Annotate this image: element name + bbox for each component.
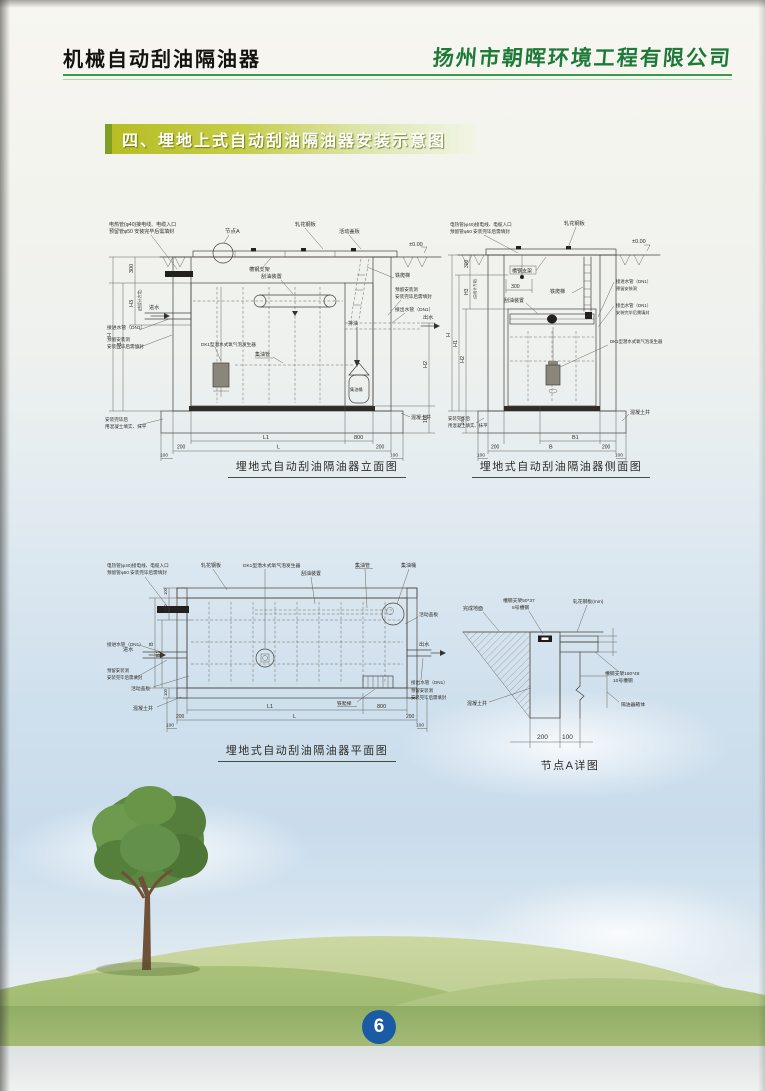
outlet-pipe-label: 接出水管（DN1） bbox=[411, 679, 448, 686]
outlet-pipe-label: 接出水管（DN1） bbox=[395, 306, 433, 313]
channel-support-label: 槽钢支架 bbox=[512, 268, 532, 275]
dim-100: 100 bbox=[166, 723, 174, 729]
section-banner-accent bbox=[105, 124, 112, 154]
dim-100: 100 bbox=[163, 587, 168, 595]
plan-view-caption: 埋地式自动刮油隔油器平面图 bbox=[218, 742, 396, 762]
reserved-hole-label1: 预留安装洞 bbox=[411, 687, 434, 694]
checkered-plate-label: 轧花钢板 bbox=[201, 562, 221, 569]
support-big-label1: 槽钢支架160*48 bbox=[605, 670, 640, 677]
section-banner: 四、埋地上式自动刮油隔油器安装示意图 bbox=[112, 124, 476, 154]
section-title: 四、埋地上式自动刮油隔油器安装示意图 bbox=[112, 127, 446, 151]
dim-b: B bbox=[549, 445, 553, 451]
dim-b1: B1 bbox=[156, 651, 162, 657]
node-dim-lines bbox=[510, 718, 593, 748]
backfill-note1: 安装完毕后 bbox=[105, 416, 128, 423]
dim-h3-note: (由设计方定) bbox=[137, 289, 142, 311]
node-a-detail-drawing: 完成地面 槽钢支架50*37 5号槽钢 轧花钢板(mm) 槽钢支架160*48 … bbox=[455, 590, 675, 765]
outlet-label: 出水 bbox=[423, 313, 434, 321]
backfill-note2: 用混凝土填实、抹平 bbox=[448, 422, 488, 429]
company-name: 扬州市朝晖环境工程有限公司 bbox=[432, 42, 734, 72]
page-number-badge: 6 bbox=[362, 1010, 396, 1044]
dim-l1: L1 bbox=[267, 704, 273, 710]
dim-800: 800 bbox=[354, 435, 363, 441]
dim-200: 200 bbox=[537, 734, 548, 741]
cable-note-line1: 电热管(φ40)接电线、电缆入口 bbox=[450, 221, 512, 228]
plan-equipment bbox=[143, 602, 446, 688]
reserved-hole-label2: 安装完毕后需填封 bbox=[616, 309, 650, 316]
oil-barrel-label: 集油桶 bbox=[401, 562, 416, 569]
dim-300: 300 bbox=[129, 264, 135, 273]
checkered-plate-label: 轧花钢板 bbox=[564, 219, 586, 227]
concrete-well-label: 混凝土井 bbox=[630, 409, 650, 416]
side-view-caption: 埋地式自动刮油隔油器侧面图 bbox=[472, 458, 650, 478]
cable-note-line2: 预留管φ50 安装完毕后需填封 bbox=[450, 228, 510, 235]
cable-note-line2: 预留管φ50 安装完毕后需填封 bbox=[109, 228, 174, 235]
cable-note-line1: 电热管(φ40)接电线、电缆入口 bbox=[107, 562, 169, 569]
dim-200: 200 bbox=[602, 445, 611, 451]
dim-300: 300 bbox=[163, 604, 168, 612]
elevation-caption: 埋地式自动刮油隔油器立面图 bbox=[228, 458, 406, 478]
channel-support-label: 槽钢支架 bbox=[249, 265, 270, 273]
oil-drain-label: 排油 bbox=[348, 320, 358, 327]
iron-ladder-label: 铁爬梯 bbox=[337, 700, 352, 707]
reserved-hole-label1: 预留安装洞 bbox=[395, 286, 418, 293]
scan-edge-left bbox=[0, 0, 10, 1091]
inlet-pipe-label: 接进水管（DN1） bbox=[107, 324, 145, 331]
backfill-note1: 安装完毕后 bbox=[448, 415, 471, 422]
level-label: ±0.00 bbox=[409, 242, 423, 248]
cable-note-line1: 电热管(φ40)接电线、电缆入口 bbox=[109, 221, 176, 228]
iron-ladder-label: 铁爬梯 bbox=[395, 272, 410, 279]
tree-art bbox=[80, 778, 220, 973]
elevation-equipment bbox=[145, 259, 440, 403]
support-small-label2: 5号槽钢 bbox=[512, 604, 529, 611]
tree-canopy bbox=[92, 786, 208, 888]
scan-footer-strip bbox=[0, 1046, 765, 1091]
plan-view-drawing: 电热管(φ40)接电线、电缆入口 预留管φ50 安装完毕后需填封 轧花钢板 DK… bbox=[105, 558, 460, 758]
backfill-note2: 用混凝土填实、抹平 bbox=[105, 423, 147, 430]
reserved-hole-label2: 安装完毕后需填封 bbox=[107, 674, 143, 681]
elevation-texts: 电热管(φ40)接电线、电缆入口 预留管φ50 安装完毕后需填封 节点A 轧花钢… bbox=[105, 220, 434, 459]
dim-b1: B1 bbox=[572, 435, 579, 441]
reserved-hole-label1: 预留安装洞 bbox=[616, 285, 637, 292]
page-number: 6 bbox=[374, 1016, 385, 1038]
cable-note-line2: 预留管φ50 安装完毕后需填封 bbox=[107, 569, 167, 576]
dim-200: 200 bbox=[376, 445, 385, 451]
side-leaders bbox=[476, 227, 629, 423]
level-label: ±0.00 bbox=[632, 239, 646, 245]
dim-h2: H2 bbox=[423, 361, 429, 368]
dim-l: L bbox=[277, 445, 280, 451]
movable-cover-label: 活动盖板 bbox=[131, 685, 150, 692]
scanned-catalog-page: 机械自动刮油隔油器 扬州市朝晖环境工程有限公司 四、埋地上式自动刮油隔油器安装示… bbox=[0, 0, 765, 1091]
inlet-pipe-label: 接进水管（DN1） bbox=[616, 278, 651, 285]
reserved-hole-label1: 预留安装洞 bbox=[107, 667, 130, 674]
dim-h2: H2 bbox=[460, 356, 466, 363]
elevation-structure bbox=[160, 243, 441, 433]
concrete-well-label: 混凝土井 bbox=[467, 700, 487, 707]
node-a-caption: 节点A详图 bbox=[520, 757, 620, 773]
plate-mm-label: 轧花钢板(mm) bbox=[573, 598, 604, 605]
oil-pipe-label: 集油管 bbox=[255, 351, 270, 358]
dim-200: 200 bbox=[491, 445, 500, 451]
scan-edge-top bbox=[0, 0, 765, 8]
side-view-drawing: 电热管(φ40)接电线、电缆入口 预留管φ50 安装完毕后需填封 轧花钢板 ±0… bbox=[448, 215, 672, 463]
header-rule bbox=[63, 74, 732, 76]
separator-body-label: 隔油器箱体 bbox=[621, 701, 645, 708]
oil-pipe-label: 集油管 bbox=[355, 562, 370, 569]
aerator-label: DK1型潜水式氧气泡发生器 bbox=[243, 562, 301, 569]
inlet-label: 进水 bbox=[123, 645, 134, 653]
support-big-label2: 10号槽钢 bbox=[613, 677, 633, 684]
aerator-label: DK1型潜水式氧气泡发生器 bbox=[201, 341, 256, 348]
dim-l1: L1 bbox=[263, 435, 269, 441]
dim-200: 200 bbox=[176, 714, 185, 720]
node-texts: 完成地面 槽钢支架50*37 5号槽钢 轧花钢板(mm) 槽钢支架160*48 … bbox=[463, 597, 645, 741]
scraper-label: 刮油装置 bbox=[261, 272, 282, 280]
aerator-label: DK1型潜水式氧气泡发生器 bbox=[610, 338, 663, 345]
dim-h: H bbox=[446, 333, 452, 337]
dim-100: 100 bbox=[160, 453, 168, 459]
dim-h: H bbox=[107, 333, 113, 337]
dim-300: 300 bbox=[464, 259, 470, 268]
scraper-label: 刮油装置 bbox=[301, 570, 321, 577]
dim-h3-note: (由设计方定) bbox=[472, 279, 477, 299]
dim-200: 200 bbox=[406, 714, 415, 720]
dim-100: 100 bbox=[163, 688, 168, 696]
dim-100: 100 bbox=[416, 723, 424, 729]
reserved-hole-label2: 安装完毕后需填封 bbox=[411, 694, 447, 701]
plan-leaders bbox=[135, 569, 423, 708]
dim-h1: H1 bbox=[117, 342, 123, 349]
inlet-label: 进水 bbox=[149, 303, 160, 311]
elevation-dim-lines bbox=[109, 257, 435, 461]
scraper-label: 刮油装置 bbox=[504, 297, 524, 304]
dim-200: 200 bbox=[177, 445, 186, 451]
dim-b: B bbox=[149, 642, 155, 646]
outlet-pipe-label: 接出水管（DN1） bbox=[616, 302, 651, 309]
header-rule-light bbox=[63, 79, 732, 80]
dim-100: 100 bbox=[562, 734, 573, 741]
page-header: 机械自动刮油隔油器 扬州市朝晖环境工程有限公司 bbox=[63, 42, 732, 72]
dim-300: 300 bbox=[511, 284, 520, 290]
concrete-well-label: 混凝土井 bbox=[133, 705, 153, 712]
finished-ground-label: 完成地面 bbox=[463, 605, 483, 612]
support-small-label1: 槽钢支架50*37 bbox=[503, 597, 535, 604]
dim-l: L bbox=[293, 714, 296, 720]
iron-ladder-label: 铁爬梯 bbox=[550, 288, 565, 295]
plan-dim-lines bbox=[149, 588, 427, 732]
dim-100: 100 bbox=[423, 414, 429, 423]
dim-h3: H3 bbox=[464, 288, 470, 295]
movable-cover-label: 活动盖板 bbox=[339, 227, 361, 235]
scan-edge-right bbox=[758, 0, 765, 1091]
plan-texts: 电热管(φ40)接电线、电缆入口 预留管φ50 安装完毕后需填封 轧花钢板 DK… bbox=[107, 562, 448, 729]
dim-800: 800 bbox=[377, 704, 386, 710]
elevation-drawing: 电热管(φ40)接电线、电缆入口 预留管φ50 安装完毕后需填封 节点A 轧花钢… bbox=[105, 215, 450, 463]
checkered-plate-label: 轧花钢板 bbox=[295, 220, 317, 228]
outlet-label: 出水 bbox=[419, 640, 430, 648]
dim-h1: H1 bbox=[453, 340, 459, 347]
movable-cover-label: 活动盖板 bbox=[419, 611, 438, 618]
node-a-label: 节点A bbox=[225, 227, 240, 235]
reserved-hole-label2: 安装完毕后需填封 bbox=[395, 293, 432, 300]
product-title: 机械自动刮油隔油器 bbox=[63, 43, 261, 72]
oil-barrel-label: 集油桶 bbox=[350, 386, 363, 393]
reserved-hole-label2: 安装完毕后需填封 bbox=[107, 343, 144, 350]
dim-h3: H3 bbox=[129, 300, 135, 307]
